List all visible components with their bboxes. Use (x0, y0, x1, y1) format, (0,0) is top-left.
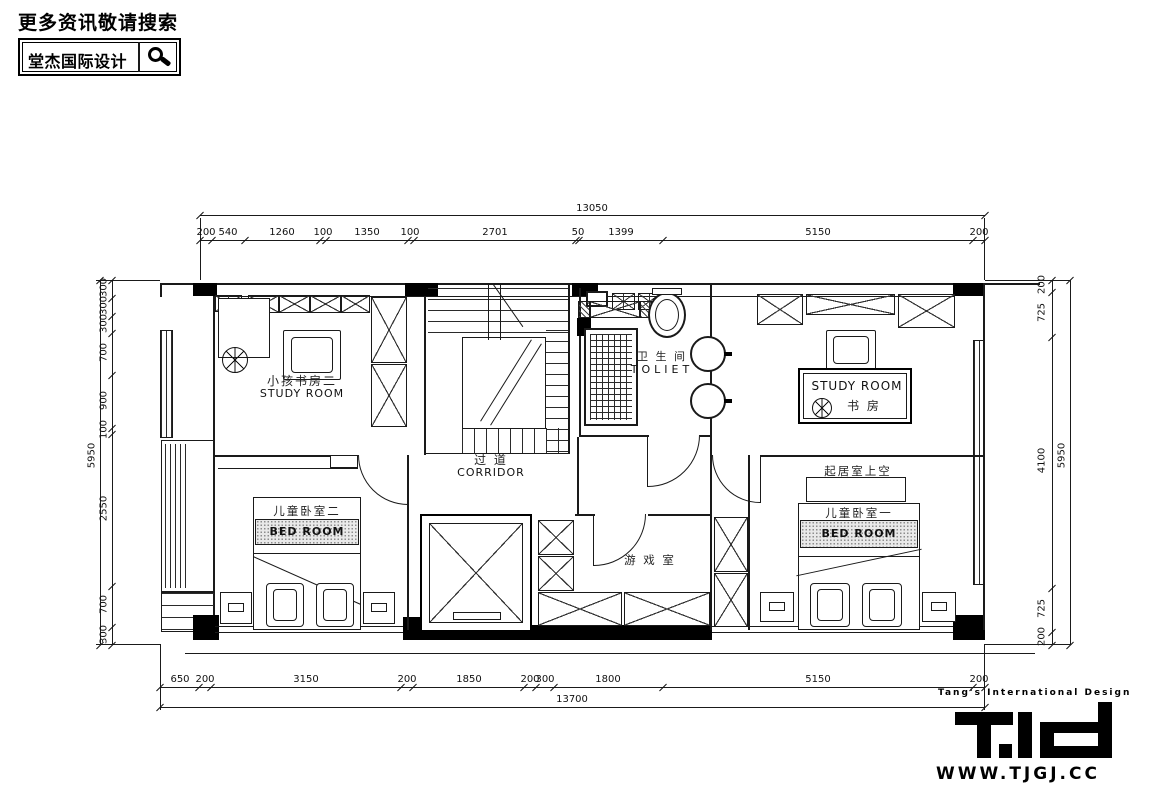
logo-d-hole (1054, 733, 1098, 746)
footer-brand: Tang's International Design WWW.TJGJ.CC (930, 688, 1145, 788)
dim-label: 300 (99, 615, 110, 655)
dim-label: 200 (957, 227, 1001, 238)
dim-label: 725 (1037, 293, 1048, 333)
dim-label: 5150 (796, 227, 840, 238)
dim-line (160, 707, 985, 708)
dim-label: 13700 (550, 694, 594, 705)
dim-label: 1260 (260, 227, 304, 238)
logo-d-stem (1098, 702, 1112, 758)
dim-label: 100 (99, 410, 110, 450)
logo-i-bar (1018, 712, 1032, 758)
dim-label: 2701 (473, 227, 517, 238)
dim-line (160, 687, 985, 688)
dim-label: 540 (206, 227, 250, 238)
dim-label: 100 (388, 227, 432, 238)
floorplan-page: 更多资讯敬请搜索 堂杰国际设计 (0, 0, 1158, 800)
dim-label: 300 (523, 674, 567, 685)
footer-website: WWW.TJGJ.CC (936, 764, 1100, 784)
dim-label: 4100 (1037, 441, 1048, 481)
dim-label: 13050 (570, 203, 614, 214)
dim-line (1070, 280, 1071, 645)
dim-line (112, 280, 113, 645)
dim-label: 100 (301, 227, 345, 238)
dim-label: 1399 (599, 227, 643, 238)
dim-label: 2550 (99, 489, 110, 529)
dim-label: 700 (99, 333, 110, 373)
dim-label: 50 (556, 227, 600, 238)
dim-label: 200 (1037, 617, 1048, 657)
dim-label: 5150 (796, 674, 840, 685)
dim-label: 200 (957, 674, 1001, 685)
dim-label: 5950 (87, 436, 98, 476)
witness-line (985, 280, 1071, 281)
witness-line (985, 644, 1071, 645)
dim-label: 200 (183, 674, 227, 685)
tid-logo (955, 702, 1125, 758)
dim-label: 1800 (586, 674, 630, 685)
logo-dot (999, 744, 1012, 758)
dim-label: 1850 (447, 674, 491, 685)
witness-line (160, 644, 161, 710)
dim-label: 5950 (1057, 436, 1068, 476)
dim-label: 200 (385, 674, 429, 685)
dimensions: 13050 200 540 1260 100 1350 100 2701 50 … (0, 0, 1158, 800)
dim-label: 1350 (345, 227, 389, 238)
dim-label: 3150 (284, 674, 328, 685)
logo-t-stem (977, 712, 991, 758)
footer-tagline: Tang's International Design (938, 688, 1138, 698)
dim-line (200, 215, 985, 216)
